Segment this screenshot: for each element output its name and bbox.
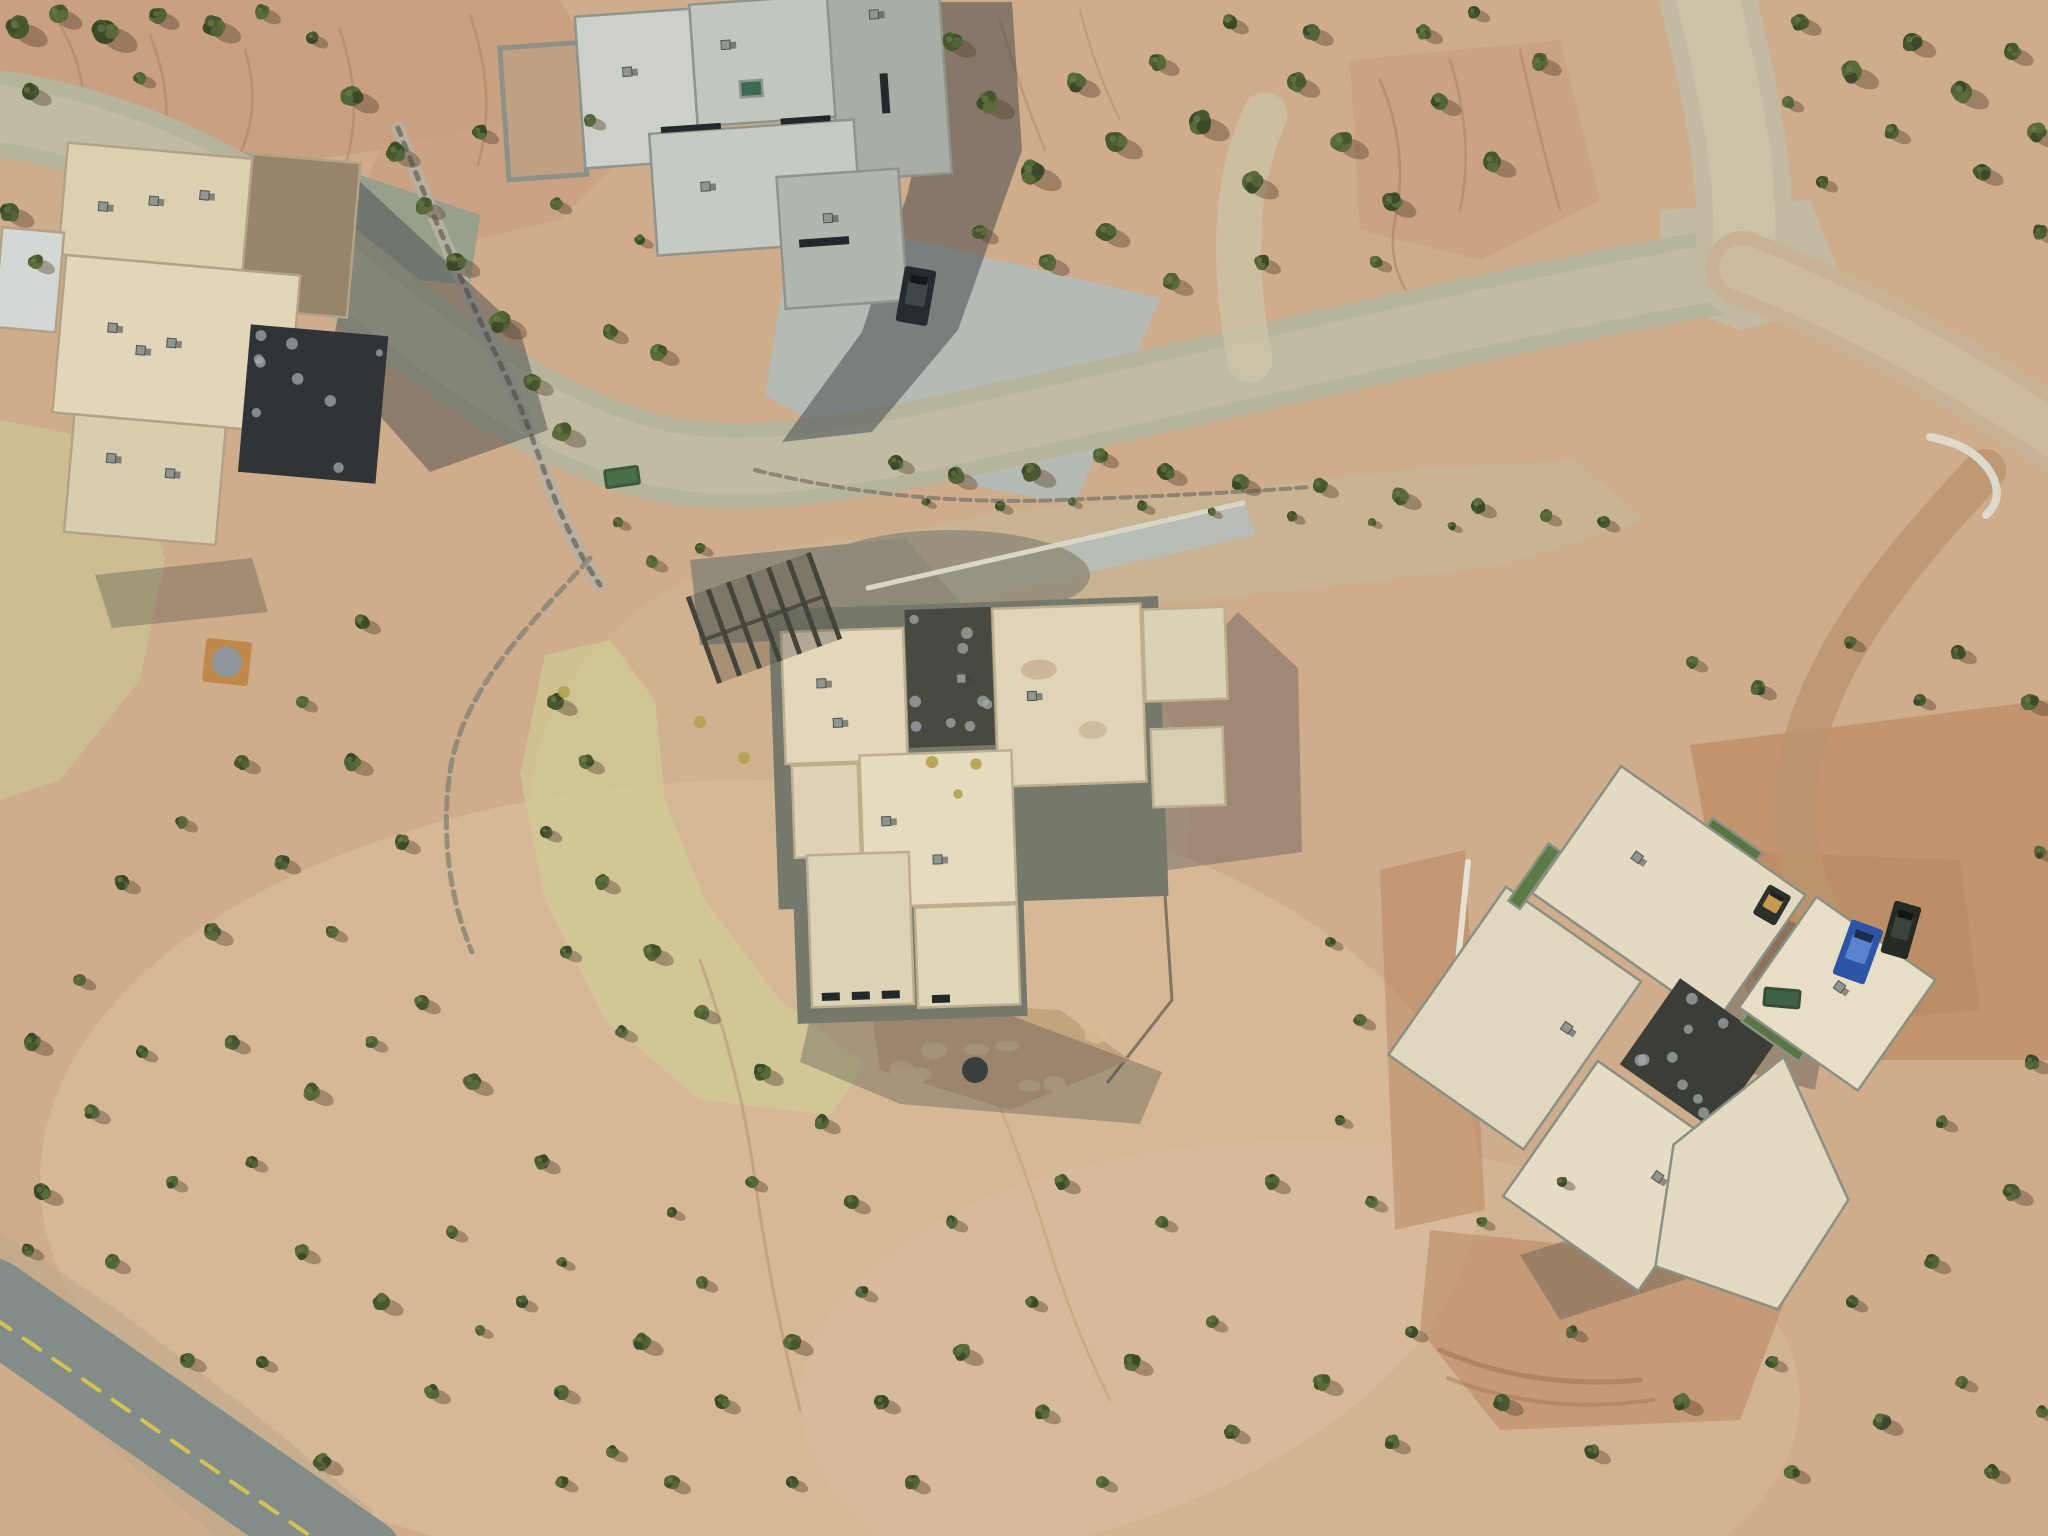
canopy-clump [654,351,664,361]
roof-vent [622,67,632,77]
canopy-highlight [537,1157,542,1162]
canopy-clump [1330,938,1336,944]
canopy-highlight [4,206,10,212]
canopy-highlight [877,1397,882,1402]
canopy-highlight [2007,47,2013,53]
roof-vent [933,855,942,864]
roof-vent-shadow [730,42,736,49]
yellow-shrub [694,716,706,728]
canopy-clump [1799,19,1809,29]
canopy-clump [544,831,551,838]
roof-vent-shadow [117,326,124,333]
canopy-clump [1477,504,1486,513]
canopy-highlight [277,857,282,862]
canopy-clump [1228,20,1237,29]
canopy-highlight [475,127,480,132]
yellow-shrub [738,752,750,764]
aerial-photo-svg [0,0,2048,1536]
canopy-highlight [982,96,989,103]
canopy-highlight [527,377,533,383]
canopy-highlight [542,828,546,832]
canopy-highlight [24,1246,28,1250]
canopy-clump [1105,225,1116,236]
canopy-highlight [1449,523,1452,526]
canopy-highlight [1336,136,1343,143]
canopy-clump [926,499,931,504]
canopy-highlight [1818,178,1822,182]
canopy-clump [1239,477,1249,487]
canopy-highlight [698,1278,702,1282]
roof-vent-shadow [878,11,884,18]
canopy-highlight [647,947,653,953]
canopy-highlight [951,471,957,477]
roof-vent-shadow [174,471,181,478]
canopy-highlight [1153,57,1159,63]
window-slit [932,995,950,1004]
canopy-highlight [494,316,501,323]
house-center-roof-block [1151,727,1226,807]
canopy-highlight [1315,481,1320,486]
canopy-highlight [597,877,602,882]
canopy-clump [1450,526,1455,531]
canopy-highlight [1028,1298,1032,1302]
canopy-clump [1309,31,1319,41]
juniper-tree [73,974,86,986]
canopy-highlight [183,1355,188,1360]
canopy-highlight [1677,1397,1683,1403]
canopy-highlight [1795,17,1801,23]
canopy-highlight [1110,136,1117,143]
canopy-clump [361,619,370,628]
canopy-highlight [1139,503,1143,507]
canopy-highlight [608,1448,612,1452]
canopy-clump [1288,516,1294,522]
canopy-highlight [419,201,425,207]
canopy-clump [586,120,593,127]
juniper-tree [664,1475,680,1489]
canopy-highlight [1246,176,1253,183]
canopy-highlight [1317,1377,1323,1383]
canopy-clump [530,380,540,390]
canopy-highlight [117,877,122,882]
hot-tub [202,638,252,687]
roof-vent-shadow [632,69,638,76]
canopy-clump [1336,1119,1342,1125]
canopy-highlight [1987,1467,1992,1472]
canopy-highlight [946,36,952,42]
canopy-highlight [559,1259,563,1263]
roof-vent [106,453,116,463]
canopy-clump [184,1359,193,1368]
canopy-clump [1360,1016,1367,1023]
house-top-left-roof-block [64,414,226,545]
canopy-highlight [1846,66,1853,73]
canopy-highlight [787,1337,793,1343]
canopy-highlight [997,503,1001,507]
canopy-clump [104,24,119,39]
canopy-clump [117,881,126,890]
canopy-highlight [858,1288,862,1292]
roof-vent-shadow [209,193,216,200]
roof-vent-shadow [158,199,165,206]
canopy-highlight [1768,1358,1772,1362]
canopy-highlight [298,698,302,702]
roof-vent-shadow [107,204,114,211]
canopy-clump [955,473,965,483]
canopy-highlight [153,11,159,17]
canopy-highlight [551,697,557,703]
roof-vent [200,190,210,200]
canopy-highlight [1372,258,1376,262]
canopy-highlight [1356,1016,1360,1020]
house-center-roof-block [992,604,1146,787]
canopy-highlight [227,1037,232,1042]
canopy-highlight [11,21,19,29]
canopy-highlight [31,257,36,262]
canopy-highlight [450,256,456,262]
canopy-clump [1931,1256,1940,1265]
juniper-tree [516,1295,528,1308]
roof-vent-shadow [826,680,832,687]
canopy-highlight [317,1457,323,1463]
canopy-clump [559,1391,568,1400]
roof-vent [721,40,731,50]
canopy-highlight [717,1397,722,1402]
canopy-highlight [923,499,926,502]
roof-vent [98,202,108,212]
roof-vent [136,345,146,355]
canopy-clump [1399,492,1409,502]
canopy-highlight [957,1347,963,1353]
juniper-tree [0,203,19,222]
roof-vent [1027,691,1036,700]
canopy-clump [1031,1300,1038,1307]
canopy-clump [791,1340,801,1350]
canopy-highlight [248,1158,252,1162]
canopy-highlight [847,1197,852,1202]
house-top-center-roof-block [740,80,763,97]
canopy-highlight [347,757,353,763]
canopy-highlight [552,200,556,204]
canopy-clump [470,1080,480,1090]
canopy-highlight [467,1077,473,1083]
canopy-highlight [1877,1417,1883,1423]
canopy-highlight [1208,1318,1212,1322]
canopy-highlight [518,1298,522,1302]
canopy-highlight [562,948,566,952]
roof-vent-shadow [966,676,972,683]
window-slit [852,991,870,1000]
canopy-highlight [1098,1478,1102,1482]
juniper-tree [1208,507,1216,516]
canopy-highlight [1787,1467,1792,1472]
canopy-highlight [1025,165,1033,173]
canopy-highlight [25,87,31,93]
roof-vent-shadow [891,818,897,825]
canopy-highlight [136,74,140,78]
canopy-clump [610,328,619,337]
canopy-clump [982,101,994,113]
canopy-highlight [1956,86,1963,93]
canopy-clump [398,841,407,850]
canopy-highlight [907,1477,912,1482]
canopy-clump [651,947,661,957]
canopy-clump [209,931,219,941]
canopy-clump [1319,480,1328,489]
canopy-highlight [307,1087,313,1093]
canopy-clump [617,521,623,527]
canopy-highlight [1479,1219,1483,1223]
canopy-highlight [757,1067,763,1073]
canopy-highlight [1559,1179,1563,1183]
canopy-clump [1197,120,1211,134]
canopy-highlight [397,837,402,842]
house-top-center-roof-block [500,43,587,180]
juniper-tree [613,517,623,527]
canopy-clump [1691,657,1698,664]
canopy-highlight [975,227,980,232]
juniper-tree [1303,24,1320,41]
canopy-highlight [1600,518,1604,522]
canopy-clump [138,77,145,84]
canopy-highlight [448,1228,452,1232]
canopy-highlight [1587,1447,1592,1452]
roof-vent [108,323,118,333]
aerial-photo [0,0,2048,1536]
canopy-clump [1317,1381,1327,1391]
canopy-highlight [648,558,652,562]
canopy-highlight [390,146,396,152]
canopy-highlight [1257,257,1262,262]
canopy-highlight [297,1247,302,1252]
canopy-highlight [27,1037,33,1043]
canopy-clump [556,200,563,207]
dumpster-green-lid [1765,990,1798,1007]
canopy-clump [1156,60,1166,70]
canopy-highlight [97,24,105,32]
yellow-shrub [970,758,981,769]
gravel-spur-north [1239,115,1265,360]
canopy-highlight [1289,513,1293,517]
canopy-highlight [615,519,619,523]
canopy-highlight [1095,451,1100,456]
canopy-highlight [308,34,312,38]
canopy-highlight [1848,1298,1852,1302]
window-slit [882,990,900,999]
canopy-clump [478,1329,484,1335]
canopy-highlight [1235,477,1241,483]
canopy-highlight [1327,939,1331,943]
canopy-highlight [87,1107,92,1112]
canopy-highlight [1043,257,1049,263]
canopy-highlight [618,1028,622,1032]
roof-vent [882,817,891,826]
canopy-highlight [1846,638,1850,642]
canopy-clump [696,548,702,554]
canopy-highlight [1307,27,1313,33]
canopy-highlight [377,1297,383,1303]
roof-vent [167,338,177,348]
canopy-highlight [1906,36,1912,42]
canopy-highlight [1486,156,1492,162]
canopy-highlight [1688,658,1692,662]
canopy-highlight [1267,1177,1272,1182]
canopy-highlight [2030,126,2036,132]
canopy-highlight [1037,1407,1042,1412]
roof-vent [149,196,159,206]
canopy-highlight [417,997,422,1002]
canopy-highlight [1057,1177,1062,1182]
canopy-highlight [2036,848,2040,852]
house-center-roof-block [915,904,1020,1007]
juniper-tree [366,1036,378,1048]
house-center-roof-block [1142,607,1227,702]
canopy-highlight [1167,277,1173,283]
canopy-highlight [1916,696,1920,700]
canopy-clump [1041,1410,1050,1419]
canopy-highlight [637,237,641,241]
canopy-highlight [1100,226,1106,232]
canopy-highlight [257,7,262,12]
canopy-highlight [1386,196,1392,202]
canopy-highlight [1470,8,1474,12]
canopy-highlight [667,1477,672,1482]
canopy-highlight [2025,697,2031,703]
canopy-clump [1057,1181,1066,1190]
canopy-clump [1786,101,1793,108]
canopy-highlight [477,1327,481,1331]
canopy-clump [697,1281,704,1288]
canopy-highlight [178,818,182,822]
canopy-clump [561,1477,568,1484]
canopy-highlight [2038,1408,2042,1412]
roof-vent [165,468,175,478]
canopy-highlight [168,1178,172,1182]
roof-vent-shadow [176,341,183,348]
canopy-highlight [1753,683,1758,688]
canopy-clump [891,461,900,470]
canopy-highlight [891,457,896,462]
canopy-clump [1267,1181,1276,1190]
roof-vent-shadow [832,215,838,222]
canopy-clump [332,928,339,935]
canopy-highlight [1497,1397,1503,1403]
canopy-highlight [556,426,562,432]
roof-vent-shadow [842,720,848,727]
canopy-highlight [1369,519,1372,522]
canopy-highlight [948,1218,952,1222]
house-top-left-roof-block [0,227,64,332]
canopy-clump [231,1038,240,1047]
dumpster-green [1762,986,1802,1009]
canopy-highlight [1408,1328,1412,1332]
canopy-highlight [237,757,242,762]
flagstone [1084,1026,1107,1043]
canopy-clump [1295,77,1306,88]
canopy-highlight [1161,467,1167,473]
yellow-shrub [926,756,938,768]
canopy-clump [1980,170,1990,180]
canopy-highlight [1069,499,1072,502]
canopy-highlight [1953,647,1958,652]
canopy-highlight [76,976,80,980]
canopy-highlight [1958,1378,1962,1382]
roof-vent-shadow [115,456,122,463]
canopy-clump [1487,161,1498,172]
roof-vent [823,213,833,223]
canopy-clump [448,1232,455,1239]
house-top-center-roof-block [689,0,835,126]
canopy-highlight [586,116,590,120]
canopy-highlight [207,927,213,933]
canopy-highlight [1977,167,1983,173]
canopy-highlight [788,1478,792,1482]
canopy-highlight [1435,97,1441,103]
canopy-clump [1031,164,1045,178]
canopy-highlight [2035,227,2040,232]
roof-vent-shadow [1036,693,1042,700]
house-center-roof-block [807,852,914,1007]
canopy-clump [596,881,605,890]
canopy-highlight [605,327,610,332]
roof-vent [701,182,711,192]
canopy-highlight [328,928,332,932]
canopy-highlight [1026,466,1032,472]
canopy-clump [948,1222,955,1229]
canopy-highlight [357,617,362,622]
canopy-clump [157,10,167,20]
canopy-highlight [1542,512,1546,516]
canopy-highlight [653,347,659,353]
house-center-roof-block [792,764,861,858]
canopy-highlight [697,545,701,549]
roof-vent-shadow [710,183,716,190]
canopy-highlight [748,1178,752,1182]
canopy-highlight [1337,1117,1341,1121]
canopy-highlight [1535,57,1541,63]
canopy-highlight [107,1257,112,1262]
canopy-highlight [558,1478,562,1482]
juniper-tree [905,1475,920,1490]
canopy-highlight [1368,1198,1372,1202]
canopy-highlight [138,1048,142,1052]
canopy-highlight [1070,76,1076,82]
yellow-shrub [953,789,962,798]
canopy-clump [57,10,68,21]
canopy-clump [612,1448,619,1455]
canopy-highlight [37,1187,43,1193]
canopy-highlight [1927,1257,1932,1262]
canopy-highlight [346,90,353,97]
canopy-clump [1102,1478,1109,1485]
canopy-clump [256,11,265,20]
canopy-highlight [637,1337,643,1343]
canopy-highlight [1419,27,1424,32]
canopy-clump [345,761,355,771]
canopy-highlight [2027,1057,2032,1062]
canopy-clump [261,1360,268,1367]
canopy-highlight [427,1387,432,1392]
window-slit [822,992,840,1001]
canopy-clump [1881,1416,1891,1426]
canopy-highlight [697,1007,702,1012]
canopy-highlight [817,1117,822,1122]
roof-vent [957,674,966,683]
roof-vent [817,679,826,688]
yellow-shrub [558,686,570,698]
canopy-highlight [1473,501,1478,506]
canopy-clump [669,1212,675,1218]
